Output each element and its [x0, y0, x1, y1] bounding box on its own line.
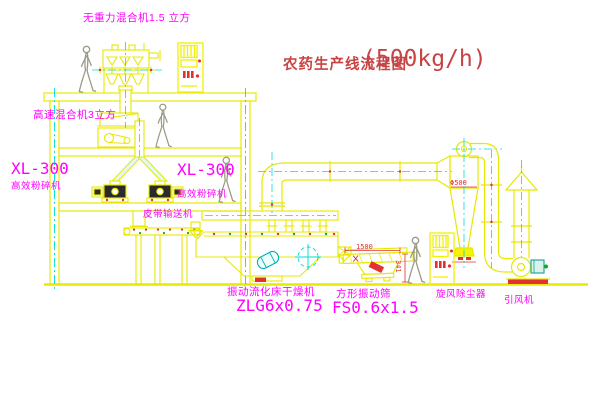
belt-conveyor-label: 皮带输送机	[143, 210, 193, 220]
dust-collector-label: 旋风除尘器	[436, 290, 486, 300]
pulverizer-left-drawing	[92, 181, 128, 202]
fan-base	[508, 280, 548, 285]
dryer-center-mark	[295, 244, 321, 270]
fan-motor	[531, 260, 548, 273]
fluid-bed-dryer-drawing	[188, 211, 351, 281]
duct-centerlines	[205, 152, 452, 216]
control-cabinet-ground	[430, 233, 454, 285]
high-speed-mixer-label: 高速混合机3立方	[33, 110, 116, 121]
belt-conveyor-roller-dots	[133, 229, 195, 235]
screen-height-dimension: 341	[394, 260, 402, 273]
draft-fan-label: 引风机	[504, 296, 534, 306]
cabinet-top-indicator-marks	[183, 60, 201, 79]
screen-length-dimension: 1500	[356, 243, 373, 251]
gravity-mixer-label: 无重力混合机1.5 立方	[83, 13, 191, 24]
belt-conveyor-drawing	[124, 211, 200, 284]
person-icon	[156, 104, 171, 147]
control-cabinet-top	[178, 43, 203, 92]
process-flow-diagram: 无重力混合机1.5 立方 农药生产线流程图 (500kg/h) 高速混合机3立方…	[0, 0, 600, 403]
y-pipe-drawing	[112, 157, 167, 181]
dryer-model-label: ZLG6x0.75	[236, 298, 323, 314]
exhaust-duct-drawing	[259, 156, 450, 211]
pulverizer-left-name-label: 高效粉碎机	[11, 182, 61, 192]
pulverizer-right-model-label: XL-300	[177, 162, 235, 178]
duct-flange-dots	[271, 170, 401, 205]
cabinet-ground-indicator-marks	[435, 250, 453, 269]
screen-model-label: FS0.6x1.5	[332, 300, 419, 316]
diagram-title-capacity: (500kg/h)	[362, 46, 487, 72]
pulverizer-left-model-label: XL-300	[11, 161, 69, 177]
fan-suction-pipe-drawing	[469, 144, 513, 273]
pulverizer-right-name-label: 高效粉碎机	[177, 190, 227, 200]
dryer-rotary-valve	[255, 250, 280, 271]
person-icon	[408, 237, 424, 283]
person-icon	[79, 46, 95, 92]
gravity-mixer-drawing	[97, 43, 160, 93]
cyclone-diameter-dimension: Φ500	[450, 179, 467, 187]
